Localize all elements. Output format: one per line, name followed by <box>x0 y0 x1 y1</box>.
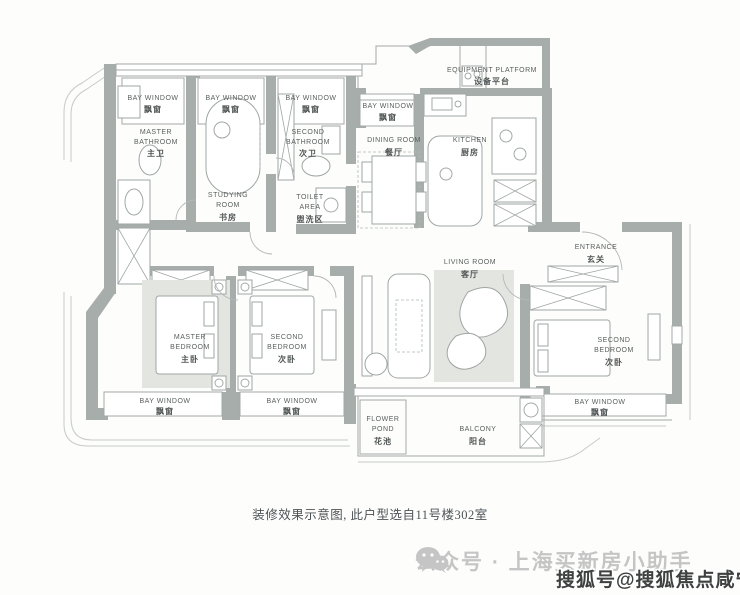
label-equipment-platform-en: EQUIPMENT PLATFORM <box>447 67 537 74</box>
label-bay-window-2-en: BAY WINDOW <box>205 95 256 102</box>
label-living-room-cn: 客厅 <box>460 269 479 279</box>
label-entrance-en: ENTRANCE <box>575 244 618 251</box>
kitchen-sink <box>424 94 466 116</box>
floor-plan-drawing: BAY WINDOW 飘窗 BAY WINDOW 飘窗 BAY WINDOW 飘… <box>0 0 740 500</box>
label-bay-window-1-cn: 飘窗 <box>144 104 162 114</box>
dresser <box>648 314 660 360</box>
wechat-icon <box>415 546 449 573</box>
label-toilet-area-en2: AREA <box>299 204 320 211</box>
label-bay-window-7-cn: 飘窗 <box>591 407 609 417</box>
label-flower-pond-cn: 花池 <box>374 436 392 446</box>
label-balcony-en: BALCONY <box>460 426 497 433</box>
label-second-bedroom-left-en2: BEDROOM <box>267 344 307 351</box>
label-bay-window-6-cn: 飘窗 <box>283 406 301 416</box>
bath-sink <box>118 180 150 224</box>
label-second-bathroom-cn: 次卫 <box>299 148 317 158</box>
label-bay-window-2-cn: 飘窗 <box>222 104 240 114</box>
label-toilet-area-cn: 盥洗区 <box>297 214 324 224</box>
label-master-bedroom-cn: 主卧 <box>181 354 199 364</box>
dining-table <box>372 156 416 224</box>
toilet <box>302 156 330 176</box>
label-balcony-cn: 阳台 <box>469 436 487 446</box>
washing-machine <box>520 398 542 422</box>
sofa <box>388 274 430 378</box>
label-studying-room-cn: 书房 <box>219 212 237 222</box>
label-toilet-area-en1: TOILET <box>296 194 324 201</box>
plant <box>365 353 387 375</box>
label-studying-room-en1: STUDYING <box>208 192 248 199</box>
label-dining-room-en: DINING ROOM <box>367 137 421 144</box>
label-second-bedroom-left-en1: SECOND <box>271 334 304 341</box>
label-equipment-platform-cn: 设备平台 <box>474 76 510 86</box>
label-flower-pond-en2: POND <box>372 426 394 433</box>
label-bay-window-6-en: BAY WINDOW <box>266 398 317 405</box>
label-second-bedroom-right-en1: SECOND <box>598 337 631 344</box>
label-master-bedroom-en1: MASTER <box>174 334 206 341</box>
label-dining-room-cn: 餐厅 <box>384 147 403 157</box>
label-studying-room-en2: ROOM <box>216 202 240 209</box>
label-master-bathroom-en2: BATHROOM <box>134 139 178 146</box>
label-second-bedroom-left-cn: 次卧 <box>278 354 296 364</box>
label-master-bathroom-cn: 主卫 <box>147 148 165 158</box>
label-second-bathroom-en2: BATHROOM <box>286 139 330 146</box>
label-bay-window-5-cn: 飘窗 <box>156 406 174 416</box>
label-kitchen-en: KITCHEN <box>453 137 487 144</box>
label-flower-pond-en1: FLOWER <box>367 416 400 423</box>
dresser <box>322 310 336 360</box>
label-bay-window-3-en: BAY WINDOW <box>285 95 336 102</box>
shower <box>118 86 140 118</box>
label-second-bathroom-en1: SECOND <box>292 129 325 136</box>
label-entrance-cn: 玄关 <box>587 254 605 264</box>
label-second-bedroom-right-en2: BEDROOM <box>594 347 634 354</box>
label-bay-window-1-en: BAY WINDOW <box>127 95 178 102</box>
sohu-watermark: 搜狐号@搜狐焦点咸宁站 <box>556 565 740 592</box>
label-living-room-en: LIVING ROOM <box>444 259 496 266</box>
label-master-bedroom-en2: BEDROOM <box>170 344 210 351</box>
label-bay-window-4-en: BAY WINDOW <box>362 103 413 110</box>
plan-caption: 装修效果示意图, 此户型选自11号楼302室 <box>0 504 740 523</box>
label-bay-window-7-en: BAY WINDOW <box>574 399 625 406</box>
label-master-bathroom-en1: MASTER <box>140 129 172 136</box>
floor-plan-page: BAY WINDOW 飘窗 BAY WINDOW 飘窗 BAY WINDOW 飘… <box>0 0 740 595</box>
label-bay-window-3-cn: 飘窗 <box>302 104 320 114</box>
label-bay-window-5-en: BAY WINDOW <box>139 398 190 405</box>
label-bay-window-4-cn: 飘窗 <box>379 112 397 122</box>
label-second-bedroom-right-cn: 次卧 <box>605 357 623 367</box>
label-kitchen-cn: 厨房 <box>461 147 479 157</box>
